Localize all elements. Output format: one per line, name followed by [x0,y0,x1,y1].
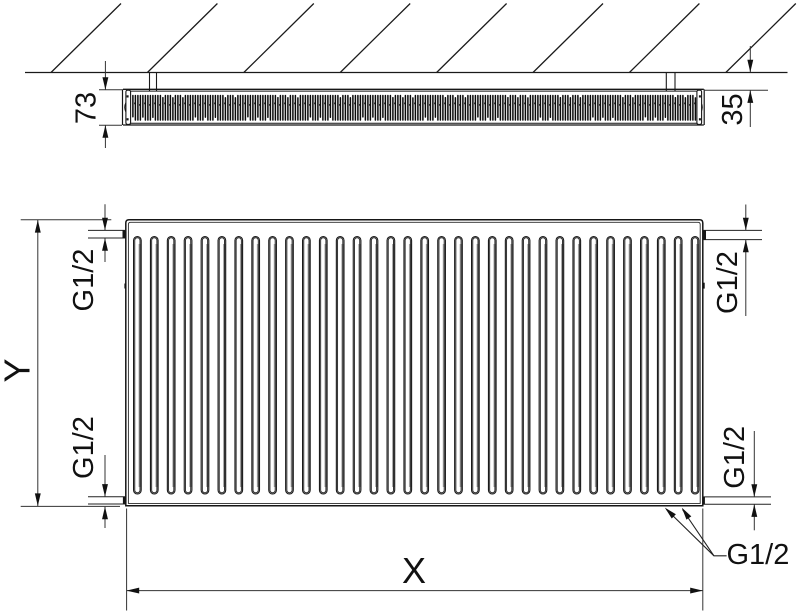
svg-text:G1/2: G1/2 [68,249,100,312]
svg-text:G1/2: G1/2 [68,416,100,479]
svg-text:35: 35 [717,93,749,125]
svg-text:G1/2: G1/2 [727,539,790,571]
svg-text:73: 73 [71,92,103,124]
svg-text:G1/2: G1/2 [719,426,751,489]
svg-text:Y: Y [0,358,38,382]
svg-text:X: X [402,550,426,591]
svg-text:G1/2: G1/2 [712,251,744,314]
